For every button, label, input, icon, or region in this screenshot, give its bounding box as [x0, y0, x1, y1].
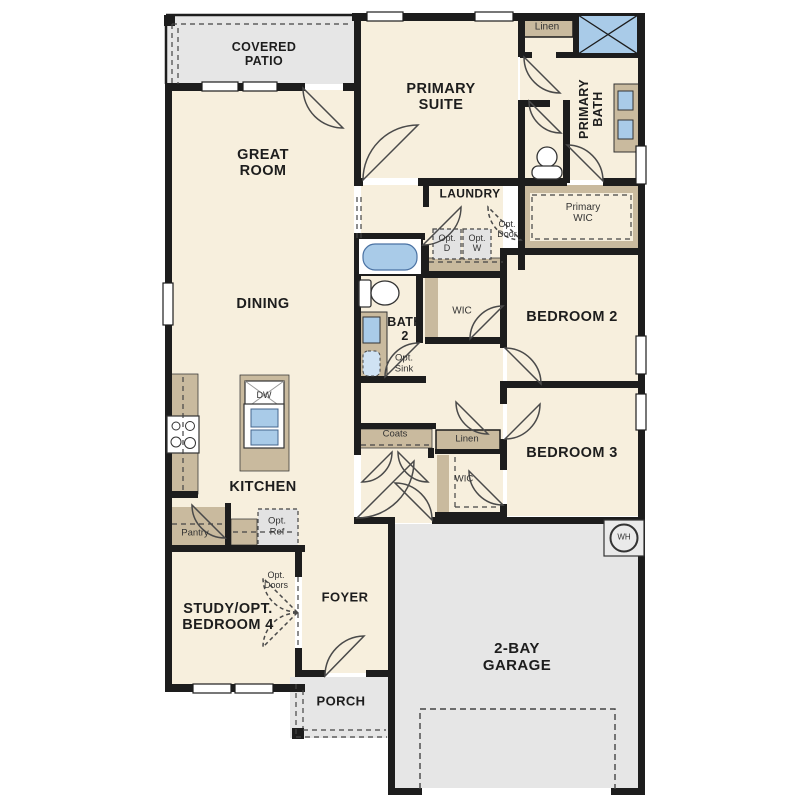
water-heater-icon [604, 520, 644, 556]
window-study-1 [193, 684, 231, 693]
pantry-shelf [170, 507, 225, 545]
floor-plan-drawing [0, 0, 810, 810]
covered-patio-floor [166, 16, 354, 84]
window-bedroom3 [636, 394, 646, 430]
bath2-sink-icon [363, 317, 380, 343]
great-room-dining-kitchen-floor [172, 90, 354, 548]
toilet-bath2-icon [359, 280, 399, 307]
bathtub-icon [358, 238, 422, 275]
window-great-room-2 [243, 82, 277, 91]
primary-suite-floor [361, 21, 518, 178]
laundry-cabinet [427, 258, 505, 272]
window-bedroom2 [636, 336, 646, 374]
opt-sink-icon [363, 351, 380, 376]
window-dining [163, 283, 173, 325]
opt-dryer-box [433, 229, 461, 259]
window-study-2 [235, 684, 273, 693]
wic-hall-shelf [437, 455, 449, 512]
opt-washer-box [463, 229, 491, 259]
floor-plan: COVERED PATIO GREAT ROOM PRIMARY SUITE P… [0, 0, 810, 810]
coats-shelf [358, 429, 432, 448]
bedroom3-floor [507, 388, 638, 516]
window-primary-suite-1 [367, 12, 403, 21]
bedroom2-floor [507, 255, 638, 381]
study-floor [172, 552, 295, 684]
wic-bath-shelf [425, 278, 438, 338]
window-primary-suite-2 [475, 12, 513, 21]
kitchen-sink-icon [244, 404, 284, 448]
foyer-floor [302, 523, 388, 673]
opt-refrigerator-box [258, 509, 298, 546]
garage-floor [395, 524, 638, 788]
linen-hall-shelf [436, 430, 500, 451]
cased-opening [357, 197, 361, 239]
window-primary-bath [636, 146, 646, 184]
window-great-room-1 [202, 82, 238, 91]
primary-wic-floor [530, 193, 633, 241]
shower-icon [578, 15, 638, 54]
